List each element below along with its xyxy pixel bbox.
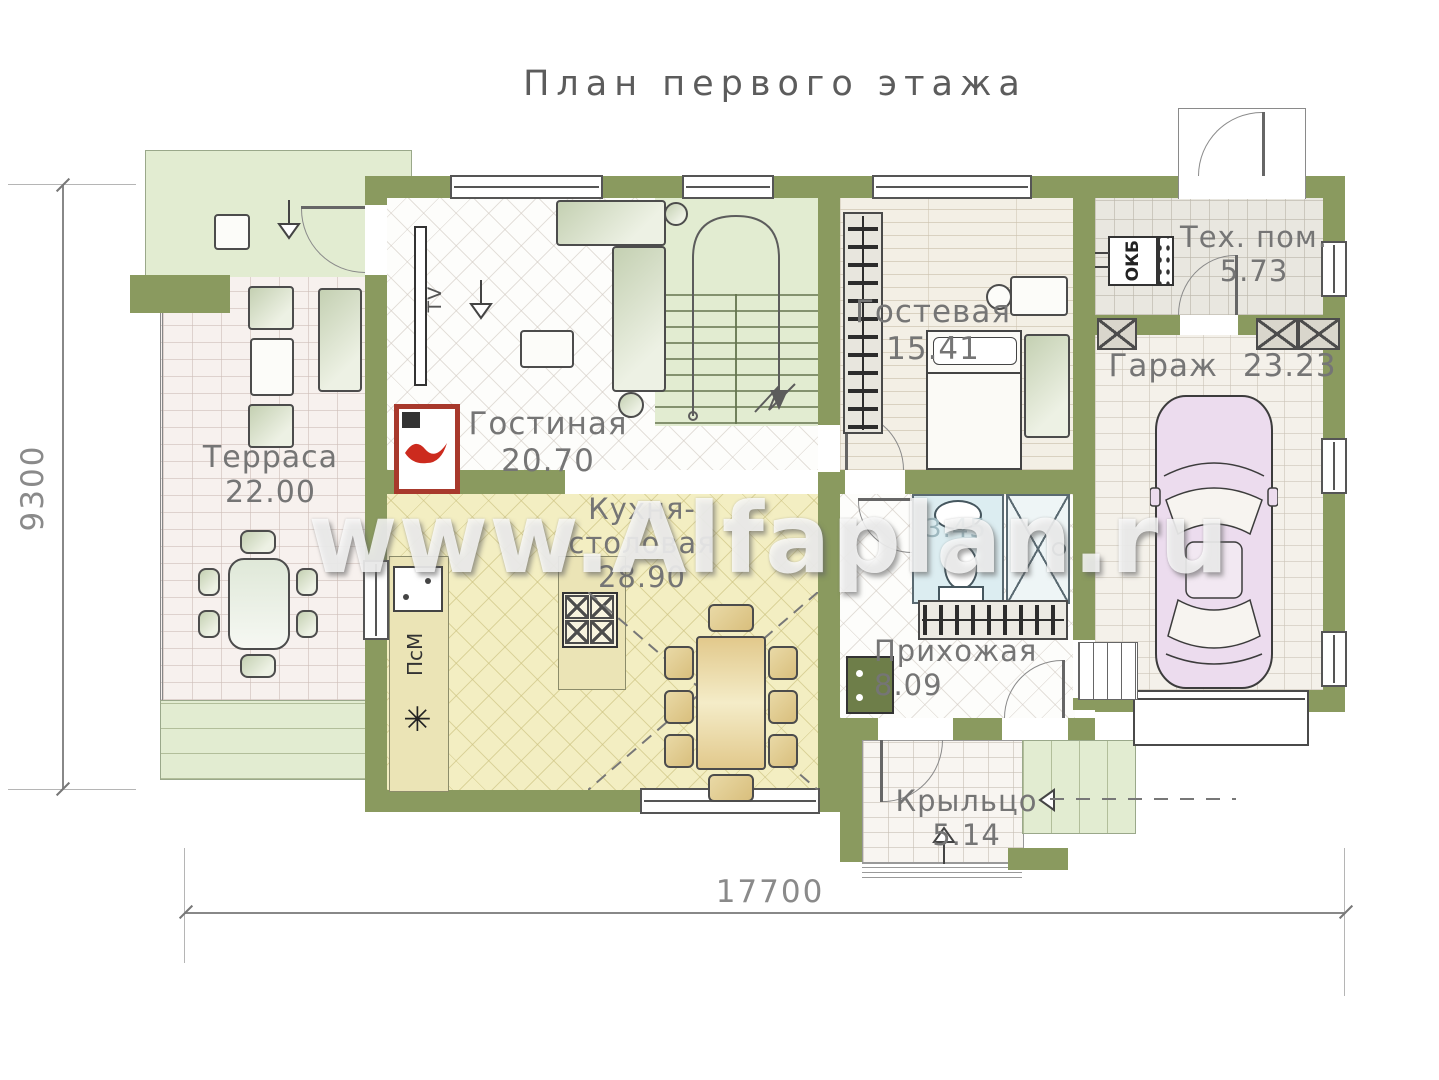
terrace-chair [296, 610, 318, 638]
stair-direction-arrow [655, 198, 818, 426]
floor-plan: План первого этажа [0, 0, 1439, 1080]
dimension-line-left [62, 185, 64, 790]
terrace-side-table [250, 338, 294, 396]
entry-door-leaf [1062, 660, 1065, 718]
boiler-pipe [1095, 266, 1109, 268]
burner-icon [565, 595, 589, 619]
extension-line [8, 789, 136, 790]
fireplace-firebox [402, 412, 420, 428]
dining-table [696, 636, 766, 770]
dishwasher-label: ПсМ [404, 622, 428, 686]
bed-blanket-line [928, 372, 1020, 374]
dining-chair [664, 690, 694, 724]
dining-chair [664, 646, 694, 680]
tv-label: TV [424, 284, 446, 314]
terrace-armchair [248, 286, 294, 330]
pouf [664, 202, 688, 226]
dining-chair [708, 774, 754, 802]
garage-gate-panel-line [1137, 698, 1305, 700]
room-label-tech: Тех. пом. 5.73 [1168, 220, 1340, 288]
garage-shelf-icon [1097, 318, 1137, 350]
terrace-corner-stub [130, 275, 230, 313]
terrace-chair [240, 530, 276, 554]
dimension-line-bottom [185, 912, 1345, 914]
porch-door-gap [878, 718, 953, 740]
extension-line [1344, 848, 1345, 996]
room-area: 15.41 [818, 331, 1048, 368]
room-area: 8.09 [874, 668, 1049, 702]
sink-star-symbol: ✳ [396, 700, 440, 740]
room-name: Гостевая [818, 294, 1048, 331]
dining-chair [768, 646, 798, 680]
boiler-unit: ОКБ [1108, 236, 1158, 286]
terrace-door-gap [365, 205, 387, 275]
terrace-chair [198, 568, 220, 596]
room-area: 5.14 [884, 818, 1049, 852]
burner-icon [565, 620, 589, 644]
bench-dot [856, 670, 863, 677]
extension-line [8, 184, 136, 185]
room-area: 23.23 [1243, 348, 1337, 384]
porch-left-wall [840, 740, 862, 862]
garage-landing-steps [1078, 642, 1138, 700]
room-name: Крыльцо [884, 784, 1049, 818]
room-label-living: Гостиная 20.70 [428, 406, 668, 479]
terrace-chair [198, 610, 220, 638]
dining-chair [664, 734, 694, 768]
room-label-hall: Прихожая 8.09 [874, 634, 1049, 702]
living-hall-passage [818, 425, 840, 472]
room-name: Гостиная [428, 406, 668, 443]
coat-rack-rail [922, 619, 1064, 621]
window-garage-right-1 [1321, 438, 1347, 494]
dining-chair [708, 604, 754, 632]
window-garage-right-2 [1321, 631, 1347, 687]
garage-shelf-icon [1256, 318, 1298, 350]
extension-line [184, 848, 185, 963]
dimension-left-label: 9300 [15, 443, 51, 533]
room-label-garage: Гараж 23.23 [1100, 348, 1345, 385]
tech-door-gap [1180, 315, 1238, 335]
room-label-porch: Крыльцо 5.14 [884, 784, 1049, 852]
window-stairs-top [682, 175, 774, 199]
tech-entry-door-leaf [1262, 112, 1265, 176]
window-living-top [450, 175, 603, 199]
garage-shelf-icon [1298, 318, 1340, 350]
boiler-label: ОКБ [1123, 240, 1143, 281]
coffee-table [520, 330, 574, 368]
window-guest-top [872, 175, 1032, 199]
terrace-chair [240, 654, 276, 678]
terrace-dining-table [228, 558, 290, 650]
dimension-bottom-label: 17700 [620, 874, 920, 910]
terrace-sofa [318, 288, 362, 392]
living-sofa-top [556, 200, 666, 246]
entry-door-gap [1002, 718, 1068, 740]
wall-guest-garage [1073, 198, 1095, 710]
room-name: Гараж [1108, 348, 1218, 384]
bench-dot [856, 694, 863, 701]
boiler-pipe [1095, 252, 1109, 254]
porch-section-line [1050, 798, 1236, 800]
room-name: Тех. пом. [1168, 220, 1340, 254]
page-title: План первого этажа [140, 64, 1410, 104]
living-sofa-side [612, 246, 666, 392]
garage-gate [1133, 690, 1309, 746]
watermark: www.Alfaplan.ru [308, 482, 1128, 595]
staircase [655, 198, 818, 426]
grill-table [214, 214, 250, 250]
room-area: 20.70 [428, 443, 668, 480]
dining-chair [768, 690, 798, 724]
dining-chair [768, 734, 798, 768]
room-area: 5.73 [1168, 254, 1340, 288]
room-label-guest: Гостевая 15.41 [818, 294, 1048, 367]
room-name: Терраса [178, 440, 363, 475]
terrace-steps [160, 700, 392, 780]
living-entry-arrow [468, 280, 494, 320]
room-name: Прихожая [874, 634, 1049, 668]
terrace-entry-arrow [276, 200, 302, 240]
